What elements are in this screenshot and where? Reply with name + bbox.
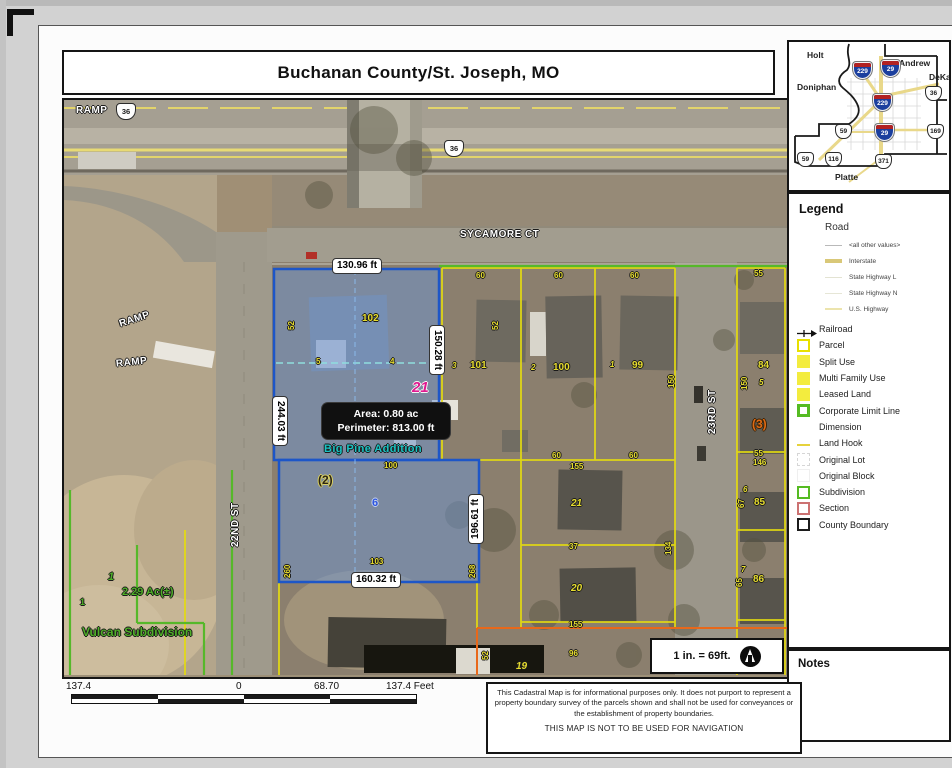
county-label: Doniphan [797, 82, 836, 92]
parcel-swatch [797, 339, 810, 352]
lot-number: 102 [362, 314, 379, 324]
22nd-street-road [216, 232, 272, 675]
street-label-ramp: RAMP [76, 106, 107, 116]
lot-dimension: 52 [492, 321, 500, 330]
lot-width: 60 [629, 452, 638, 460]
house-prefix: 3 [452, 362, 456, 370]
scale-value: 137.4 [66, 681, 91, 692]
legend-item: County Boundary [797, 517, 949, 533]
red-car [306, 252, 317, 259]
legend-item: Split Use [797, 354, 949, 370]
scanned-cadastral-map-page: { "title": "Buchanan County/St. Joseph, … [0, 0, 952, 768]
legend-group-road: Road [825, 222, 949, 233]
legend-road-item: <all other values> [825, 237, 949, 253]
scale-value: 0 [236, 681, 242, 692]
lot-number: 86 [753, 575, 764, 585]
legend-panel: Legend Road <all other values> Interstat… [787, 192, 951, 649]
house-prefix: 2 [531, 364, 535, 372]
dimension-left: 244.03 ft [272, 396, 288, 446]
scale-bar: 137.4 0 68.70 137.4 Feet [66, 681, 480, 717]
parcel-info-tooltip: Area: 0.80 ac Perimeter: 813.00 ft [322, 403, 450, 439]
parcel-acreage: 2.29 Ac(±) [122, 587, 173, 598]
lot-number: 20 [571, 584, 582, 594]
lot-number: 96 [569, 650, 578, 658]
house-prefix: 7 [741, 566, 745, 574]
interstate-line-swatch [825, 259, 842, 263]
legend-item: Subdivision [797, 484, 949, 500]
lot-number: 21 [571, 499, 582, 509]
lot-number: 1 [108, 572, 114, 583]
notes-title: Notes [798, 658, 949, 670]
lot-dimension: 146 [753, 459, 766, 467]
notes-panel: Notes [787, 649, 951, 742]
land-hook-number: 5 [316, 358, 320, 366]
land-hook-swatch [797, 444, 810, 447]
circled-subdivision-number: (2) [318, 474, 333, 486]
parcel-perimeter: Perimeter: 813.00 ft [324, 421, 448, 435]
lot-number: 85 [754, 498, 765, 508]
state-highway-n-swatch [825, 293, 842, 294]
block-number: 21 [412, 380, 429, 395]
disclaimer-warning: THIS MAP IS NOT TO BE USED FOR NAVIGATIO… [494, 723, 794, 734]
legend-item: Land Hook [797, 435, 949, 451]
lot-dimension: 155 [570, 463, 583, 471]
scale-note: 1 in. = 69ft. [673, 650, 730, 662]
railroad-icon [797, 325, 817, 334]
lot-width: 60 [552, 452, 561, 460]
lot-number: 101 [470, 361, 487, 371]
legend-item: Dimension [797, 419, 949, 435]
county-label: DeKalb [929, 72, 951, 82]
map-title-bar: Buchanan County/St. Joseph, MO [62, 50, 775, 95]
legend-title: Legend [799, 202, 949, 216]
leased-land-swatch [797, 388, 810, 401]
dimension-bottom: 160.32 ft [351, 572, 401, 588]
legend-item: Section [797, 500, 949, 516]
lot-depth: 150 [741, 377, 749, 390]
disclaimer-box: This Cadastral Map is for informational … [486, 682, 802, 754]
original-block-swatch [797, 469, 810, 482]
multi-family-swatch [797, 372, 810, 385]
street-label-23rd: 23RD ST [708, 389, 718, 434]
cadastral-map: RAMP 36 36 RAMP RAMP SYCAMORE CT 22ND ST… [62, 98, 789, 679]
subdivision-swatch [797, 486, 810, 499]
legend-item: Original Lot [797, 451, 949, 467]
land-hook-number: 4 [390, 358, 394, 366]
legend-item: Leased Land [797, 386, 949, 402]
lot-dimension: 52 [482, 651, 490, 660]
lot-dimension: 260 [284, 565, 292, 578]
lot-number: 100 [553, 363, 570, 373]
dimension-lower-right: 196.61 ft [468, 494, 484, 544]
lot-depth: 150 [668, 375, 676, 388]
truck [78, 152, 136, 169]
us-highway-swatch [825, 308, 842, 310]
legend-item: Corporate Limit Line [797, 402, 949, 418]
county-boundary-swatch [797, 518, 810, 531]
legend-item: Railroad [797, 321, 949, 337]
split-use-swatch [797, 355, 810, 368]
lot-width: 60 [630, 272, 639, 280]
street-label-22nd: 22ND ST [231, 502, 241, 547]
section-swatch [797, 502, 810, 515]
lot-dimension: 268 [469, 565, 477, 578]
scale-bar-segments [72, 695, 416, 703]
original-lot-swatch [797, 453, 810, 466]
lot-number: 99 [632, 361, 643, 371]
dimension-top: 130.96 ft [332, 258, 382, 274]
disclaimer-text: This Cadastral Map is for informational … [494, 688, 794, 719]
scale-value: 68.70 [314, 681, 339, 692]
subdivision-name: Big Pine Addition [324, 444, 422, 455]
lot-width: 60 [554, 272, 563, 280]
lot-number: 5 [759, 379, 763, 387]
north-arrow-icon [740, 646, 761, 667]
legend-item: Parcel [797, 337, 949, 353]
county-label: Andrew [899, 58, 930, 68]
lot-number: 1 [80, 598, 85, 607]
parcel-area: Area: 0.80 ac [324, 407, 448, 421]
aerial-photo-layer: RAMP 36 36 RAMP RAMP SYCAMORE CT 22ND ST… [64, 100, 787, 675]
lot-number: 19 [516, 662, 527, 672]
lot-width: 60 [476, 272, 485, 280]
lot-dimension: 52 [288, 321, 296, 330]
subdivision-name: Vulcan Subdivision [82, 626, 192, 638]
lot-number: 103 [370, 558, 383, 566]
legend-road-item: State Highway L [825, 269, 949, 285]
legend-item: Multi Family Use [797, 370, 949, 386]
scale-value: 137.4 Feet [386, 681, 434, 692]
lot-dimension: 55 [754, 450, 763, 458]
legend-road-item: State Highway N [825, 285, 949, 301]
lot-width: 55 [754, 270, 763, 278]
legend-road-item: U.S. Highway [825, 301, 949, 317]
house-prefix: 1 [610, 361, 614, 369]
lot-dimension: 155 [569, 621, 582, 629]
lot-dimension: 37 [569, 543, 578, 551]
house-number: 6 [372, 498, 378, 509]
other-values-line-swatch [825, 245, 842, 246]
county-locator-inset: Holt Andrew DeKalb Doniphan Platte 229 2… [787, 40, 951, 192]
lot-depth: 65 [736, 578, 744, 587]
circled-subdivision-number: (3) [752, 418, 767, 430]
corner-crop-mark [7, 9, 13, 36]
street-label-sycamore: SYCAMORE CT [460, 230, 539, 240]
lot-depth: 134 [665, 542, 673, 555]
dimension-right: 150.28 ft [429, 325, 445, 375]
lot-number: 84 [758, 361, 769, 371]
dimension-swatch [797, 420, 810, 433]
lot-dimension: 100 [384, 462, 397, 470]
house-prefix: 6 [743, 486, 747, 494]
page-title: Buchanan County/St. Joseph, MO [278, 63, 560, 83]
corporate-limit-swatch [797, 404, 810, 417]
legend-road-item: Interstate [825, 253, 949, 269]
state-highway-l-swatch [825, 277, 842, 278]
county-label: Platte [835, 172, 858, 182]
scan-edge-left [0, 0, 6, 768]
county-label: Holt [807, 50, 824, 60]
lot-depth: 67 [738, 499, 746, 508]
legend-item: Original Block [797, 468, 949, 484]
scan-edge-top [0, 0, 952, 6]
scale-note-box: 1 in. = 69ft. [650, 638, 784, 674]
